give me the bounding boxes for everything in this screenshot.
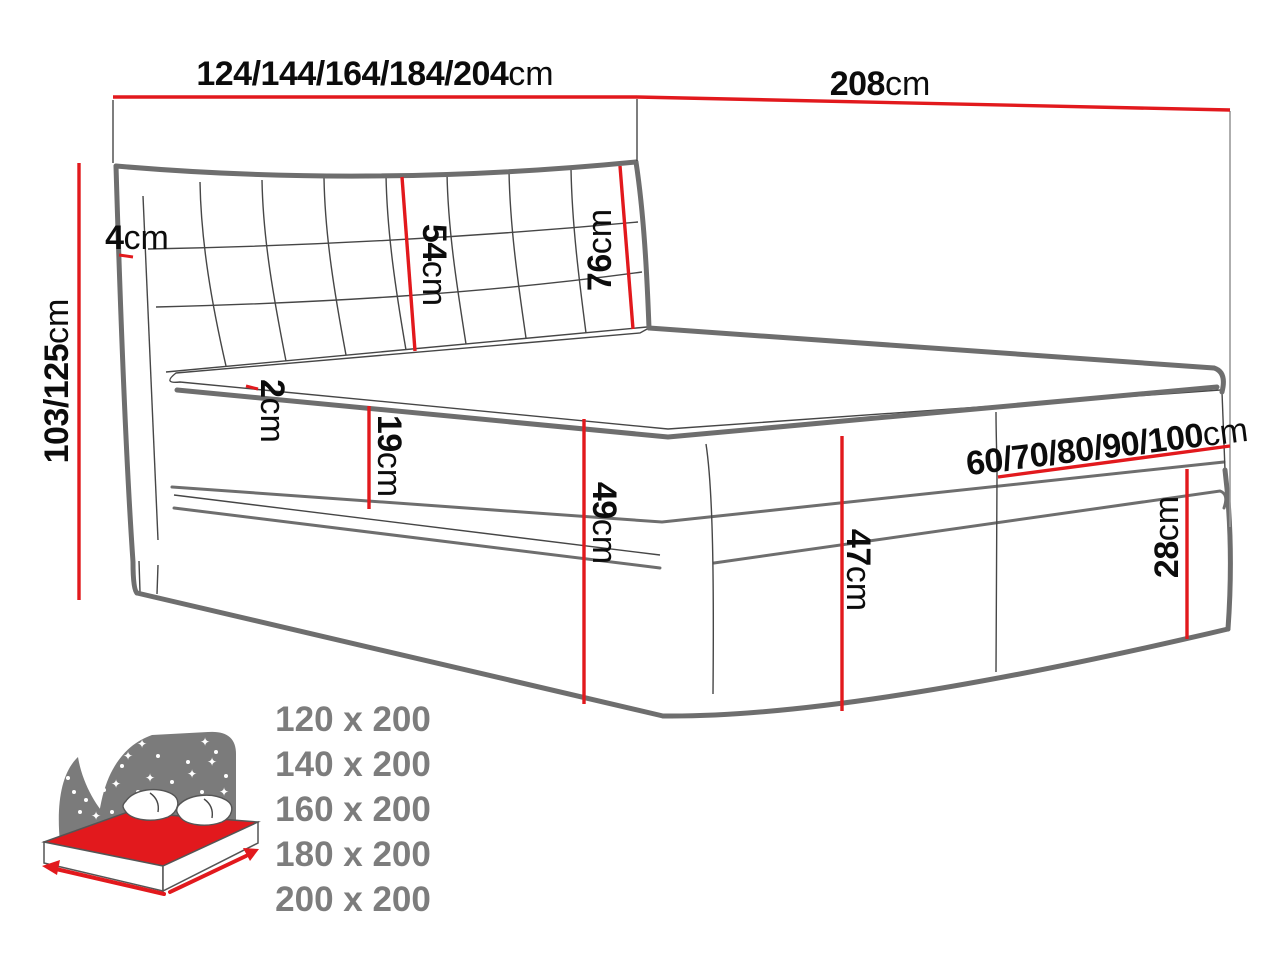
size-item: 180 x 200 bbox=[253, 832, 453, 877]
dim-width-label: 124/144/164/184/204cm bbox=[196, 57, 553, 91]
svg-text:✦: ✦ bbox=[137, 737, 147, 751]
svg-text:✦: ✦ bbox=[91, 809, 101, 823]
dim-box-lower-label: 28cm bbox=[1150, 496, 1184, 578]
dim-headboard-upper-label: 76cm bbox=[583, 209, 617, 291]
size-item: 160 x 200 bbox=[253, 787, 453, 832]
size-item: 200 x 200 bbox=[253, 877, 453, 922]
svg-text:✦: ✦ bbox=[123, 749, 133, 763]
svg-text:✦: ✦ bbox=[187, 767, 197, 781]
dim-depth-label: 208cm bbox=[830, 67, 931, 101]
size-list: 120 x 200 140 x 200 160 x 200 180 x 200 … bbox=[253, 697, 453, 922]
svg-text:✦: ✦ bbox=[207, 755, 217, 769]
bed-dimension-diagram: ✦ ✦ ✦ ✦ ✦ ✦ ✦ ✦ ✦ ✦ bbox=[0, 0, 1280, 960]
dim-headboard-panel-label: 54cm bbox=[417, 224, 451, 306]
bed-sizes-icon: ✦ ✦ ✦ ✦ ✦ ✦ ✦ ✦ ✦ ✦ bbox=[42, 732, 259, 894]
dim-headboard-side-label: 4cm bbox=[105, 221, 169, 255]
dim-line-depth bbox=[637, 97, 1230, 110]
dim-topper-label: 2cm bbox=[255, 379, 289, 443]
svg-text:✦: ✦ bbox=[145, 771, 155, 785]
bed-line-drawing: ✦ ✦ ✦ ✦ ✦ ✦ ✦ ✦ ✦ ✦ bbox=[0, 0, 1280, 960]
size-item: 140 x 200 bbox=[253, 742, 453, 787]
dim-height-label: 103/125cm bbox=[40, 299, 74, 464]
svg-text:✦: ✦ bbox=[111, 777, 121, 791]
dim-base-side-label: 47cm bbox=[841, 529, 875, 611]
svg-text:✦: ✦ bbox=[200, 735, 210, 749]
dim-mattress-label: 19cm bbox=[372, 415, 406, 497]
size-item: 120 x 200 bbox=[253, 697, 453, 742]
dim-base-front-label: 49cm bbox=[587, 482, 621, 564]
